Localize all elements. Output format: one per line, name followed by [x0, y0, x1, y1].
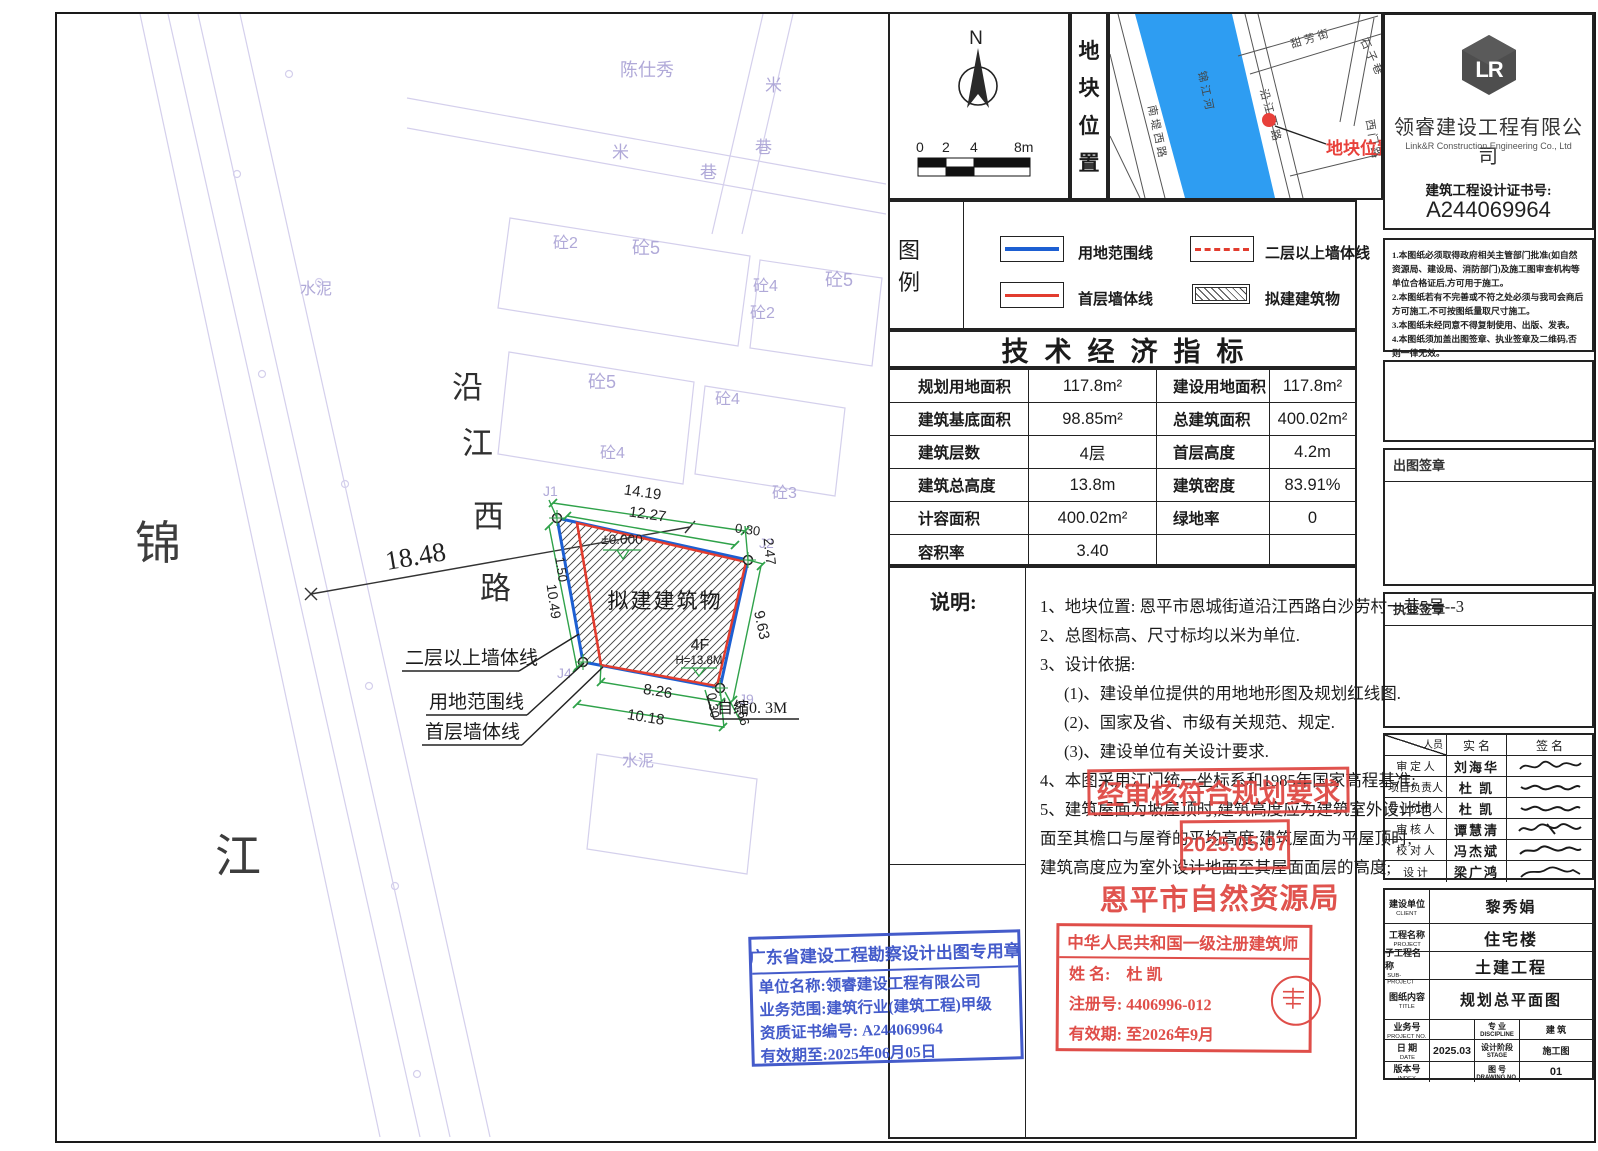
indicator-value: 117.8m²	[1029, 370, 1157, 403]
company-logo-icon: LR	[1457, 33, 1521, 97]
dim-top-outer: 14.19	[623, 482, 663, 504]
client-value: 黎秀娟	[1430, 890, 1592, 923]
architect-stamp: 中华人民共和国一级注册建筑师 姓 名: 杜 凯 注册号: 4406996-012…	[1056, 923, 1313, 1053]
indicator-value: 83.91%	[1270, 469, 1355, 502]
client-label-en: CLIENT	[1397, 910, 1418, 916]
title-block-row-date: 日 期DATE 2025.03 设计阶段STAGE 施工图	[1385, 1040, 1592, 1062]
discipline-value: 建 筑	[1520, 1020, 1592, 1039]
discipline-label-en: DISCIPLINE	[1480, 1032, 1514, 1038]
architect-seal-icon	[1271, 976, 1321, 1026]
architect-stamp-valid: 有效期: 至2026年9月	[1069, 1020, 1309, 1052]
stage-label: 设计阶段	[1481, 1042, 1513, 1053]
bg-label: 水泥	[622, 752, 654, 770]
indicator-value: 117.8m²	[1270, 370, 1355, 403]
legend-swatch-proposed	[1192, 284, 1250, 304]
title-block: 建设单位CLIENT 黎秀娟 工程名称PROJECT 住宅楼 子工程名称SUB-…	[1383, 888, 1594, 1080]
subproject-label-en: SUB-PROJECT	[1387, 972, 1427, 985]
indicator-value: 0	[1270, 502, 1355, 535]
map-street-top-label: 甜芳街	[1289, 25, 1333, 51]
indicator-value: 400.02m²	[1029, 502, 1157, 535]
scale-tick: 2	[942, 139, 950, 155]
legend-swatch-first-wall	[1000, 282, 1064, 308]
road-name: 沿 江 西 路	[452, 370, 511, 606]
company-name: 领睿建设工程有限公司	[1385, 111, 1592, 169]
scale-tick: 0	[916, 139, 924, 155]
north-label: N	[969, 28, 983, 49]
bg-label: 巷	[700, 163, 717, 182]
approval-stamp-date: 2025.05.07	[1180, 819, 1291, 870]
indicators-table: 规划用地面积 117.8m² 建设用地面积 117.8m² 建筑基底面积 98.…	[888, 368, 1357, 566]
shrink-label: 自缩0. 3M	[717, 699, 787, 717]
callout-first-wall-label: 首层墙体线	[425, 721, 520, 743]
dwgno-label: 图 号	[1488, 1064, 1506, 1075]
title-block-row-projectno: 业务号PROJECT NO. 专 业DISCIPLINE 建 筑	[1385, 1020, 1592, 1040]
bg-label: 砼4	[715, 390, 740, 408]
strip-char: 地	[1079, 35, 1100, 65]
indicator-value	[1270, 535, 1355, 568]
architect-stamp-title: 中华人民共和国一级注册建筑师	[1059, 926, 1309, 960]
bg-label: 砼3	[772, 484, 797, 502]
title-block-row-index: 版本号INDEX 图 号DRAWING NO. 01	[1385, 1062, 1592, 1082]
corner-label-j1: J1	[543, 483, 558, 499]
dim-left-top: 1.50	[552, 556, 570, 583]
signature-scribble	[1507, 861, 1592, 882]
projno-label-en: PROJECT NO.	[1387, 1033, 1426, 1039]
bg-label: 砼2	[553, 234, 578, 252]
approval-stamp: 经审核符合规划要求 2025.05.07 恩平市自然资源局	[1087, 767, 1351, 920]
site-marker-dot	[1262, 113, 1276, 127]
indicator-value: 3.40	[1029, 535, 1157, 568]
river-name-char: 江	[215, 831, 261, 882]
title-block-row-client: 建设单位CLIENT 黎秀娟	[1385, 890, 1592, 924]
disclaimer-item: 3.本图纸未经同意不得复制使用、出版、发表。	[1392, 318, 1585, 332]
project-label: 工程名称	[1389, 928, 1425, 941]
stage-value: 施工图	[1520, 1040, 1592, 1061]
north-arrow-icon	[967, 48, 989, 108]
notes-divider	[1025, 568, 1026, 1137]
disclaimer-item: 1.本图纸必须取得政府相关主管部门批准(如自然资源局、建设局、消防部门)及施工图…	[1392, 248, 1585, 290]
road-char: 江	[462, 426, 493, 461]
indicator-value: 98.85m²	[1029, 403, 1157, 436]
company-name-en: Link&R Construction Engineering Co., Ltd	[1385, 141, 1592, 151]
disclaimer-item: 4.本图纸须加盖出图签章、执业签章及二维码,否则一律无效。	[1392, 332, 1585, 360]
index-label: 版本号	[1393, 1062, 1420, 1075]
bg-label: 砼4	[600, 444, 625, 462]
dim-top-right-offset: 0.30	[734, 520, 761, 538]
note-line: 2、总图标高、尺寸标均以米为单位.	[1040, 621, 1464, 650]
dwgno-label-en: DRAWING NO.	[1476, 1075, 1517, 1081]
proposed-building-label: 拟建建筑物	[608, 589, 723, 613]
bg-label: 米	[612, 143, 629, 162]
indicator-value: 4.2m	[1270, 436, 1355, 469]
signature-scribble	[1507, 840, 1592, 861]
indicator-label	[1157, 535, 1270, 568]
subproject-value: 土建工程	[1430, 952, 1592, 979]
note-line: (1)、建设单位提供的用地地形图及规划红线图.	[1040, 679, 1464, 708]
date-value: 2025.03	[1430, 1040, 1475, 1061]
strip-char: 块	[1079, 72, 1100, 102]
indicator-label: 绿地率	[1157, 502, 1270, 535]
legend-panel: 图 例 用地范围线 二层以上墙体线 首层墙体线 拟建建筑物	[888, 200, 1357, 330]
projno-value	[1430, 1020, 1475, 1039]
dim-right-top: 2.47	[761, 537, 780, 566]
indicator-label: 建筑密度	[1157, 469, 1270, 502]
note-line: (2)、国家及省、市级有关规范、规定.	[1040, 708, 1464, 737]
indicator-label: 建筑总高度	[890, 469, 1029, 502]
sheet-title-label: 图纸内容	[1389, 990, 1425, 1003]
site-marker-label: 地块位置	[1326, 138, 1381, 158]
indicator-label: 建设用地面积	[1157, 370, 1270, 403]
callout-boundary-label: 用地范围线	[429, 691, 524, 713]
signature-scribble	[1507, 798, 1592, 819]
indicator-value: 13.8m	[1029, 469, 1157, 502]
bg-label: 水泥	[300, 280, 332, 298]
elevation-label: ±0.000	[601, 532, 642, 547]
scale-bar-icon	[918, 158, 1030, 176]
signature-scribble	[1507, 819, 1592, 840]
indicator-value: 4层	[1029, 436, 1157, 469]
drawing-sheet: 陈仕秀 米 巷 米 巷 砼2 砼5 砼4 砼2 砼5 水泥 砼5 砼4 砼3 砼…	[0, 0, 1598, 1151]
dim-road-width: 18.48	[383, 536, 448, 576]
legend-label-first-wall: 首层墙体线	[1078, 288, 1153, 309]
indicator-label: 建筑基底面积	[890, 403, 1029, 436]
bg-label: 砼5	[632, 238, 660, 258]
project-label-en: PROJECT	[1393, 941, 1420, 947]
bg-label: 米	[765, 76, 782, 95]
strip-char: 位	[1079, 110, 1100, 140]
bg-label: 巷	[755, 138, 772, 157]
compass-panel: N 0 2 4 8m	[888, 12, 1070, 200]
dim-right-side: 9.63	[750, 609, 773, 641]
corner-label-j4: J4	[557, 665, 572, 681]
index-value	[1430, 1062, 1475, 1082]
date-label: 日 期	[1397, 1041, 1417, 1054]
client-label: 建设单位	[1389, 897, 1425, 910]
bg-label: 砼4	[753, 277, 778, 295]
cert-number: A244069964	[1385, 197, 1592, 223]
subproject-label: 子工程名称	[1385, 946, 1429, 972]
location-strip-title: 地 块 位 置	[1070, 12, 1108, 200]
map-street-top-right-label: 石子巷	[1357, 36, 1381, 80]
title-block-row-title: 图纸内容TITLE 规划总平面图	[1385, 980, 1592, 1020]
approval-stamp-text: 经审核符合规划要求	[1087, 767, 1349, 816]
bg-label: 砼5	[825, 270, 853, 290]
scale-tick: 4	[970, 139, 978, 155]
notes-label: 说明:	[930, 586, 977, 615]
indicator-label: 建筑层数	[890, 436, 1029, 469]
disclaimer-notes: 1.本图纸必须取得政府相关主管部门批准(如自然资源局、建设局、消防部门)及施工图…	[1383, 238, 1594, 352]
indicator-label: 计容面积	[890, 502, 1029, 535]
indicator-label: 总建筑面积	[1157, 403, 1270, 436]
approval-stamp-org: 恩平市自然资源局	[1088, 875, 1350, 920]
location-map: 锦江河 南堤西路 沿江西路 甜芳街 石子巷 西门路 地块位置	[1108, 12, 1383, 200]
scale-tick: 8m	[1014, 139, 1033, 155]
stage-label-en: STAGE	[1487, 1053, 1507, 1059]
height-label: H=13.8M	[676, 655, 723, 667]
company-block: LR 领睿建设工程有限公司 Link&R Construction Engine…	[1383, 13, 1594, 230]
notes-left-divider	[890, 864, 1025, 865]
dim-bottom-inner: 8.26	[642, 681, 674, 702]
legend-label-upper-wall: 二层以上墙体线	[1265, 242, 1370, 263]
location-map-graphic: 锦江河 南堤西路 沿江西路 甜芳街 石子巷 西门路 地块位置	[1110, 14, 1381, 198]
road-char: 沿	[452, 370, 483, 405]
indicators-title: 技术经济指标	[888, 330, 1357, 368]
legend-label-boundary: 用地范围线	[1078, 242, 1153, 263]
legend-swatch-boundary	[1000, 236, 1064, 262]
index-label-en: INDEX	[1398, 1075, 1416, 1081]
cert-label: 建筑工程设计证书号:	[1385, 179, 1592, 199]
date-label-en: DATE	[1399, 1054, 1414, 1060]
indicator-label: 首层高度	[1157, 436, 1270, 469]
sheet-title-value: 规划总平面图	[1430, 980, 1592, 1019]
plot-seal-label: 出图签章	[1385, 450, 1592, 482]
strip-char: 置	[1079, 147, 1100, 177]
legend-swatch-upper-wall	[1190, 236, 1254, 262]
title-block-row-subproject: 子工程名称SUB-PROJECT 土建工程	[1385, 952, 1592, 980]
scale-tick-labels: 0 2 4 8m	[916, 139, 1033, 155]
blue-design-stamp: 广东省建设工程勘察设计出图专用章 单位名称:领睿建设工程有限公司 业务范围:建筑…	[748, 929, 1024, 1067]
dim-top-inner: 12.27	[628, 504, 668, 526]
compass-graphic: N 0 2 4 8m	[890, 14, 1068, 198]
legend-label-proposed: 拟建建筑物	[1265, 288, 1340, 309]
signature-scribble	[1507, 777, 1592, 798]
disclaimer-item: 2.本图纸若有不完善或不符之处必须与我司会商后方可施工,不可按图纸量取尺寸施工。	[1392, 290, 1585, 318]
road-char: 路	[480, 571, 511, 606]
note-line: (3)、建设单位有关设计要求.	[1040, 737, 1464, 766]
bg-label: 砼2	[750, 304, 775, 322]
indicator-label: 规划用地面积	[890, 370, 1029, 403]
callout-upper-wall-label: 二层以上墙体线	[405, 647, 538, 669]
indicator-value: 400.02m²	[1270, 403, 1355, 436]
dim-bottom-outer: 10.18	[626, 706, 666, 729]
indicator-label: 容积率	[890, 535, 1029, 568]
projno-label: 业务号	[1393, 1020, 1420, 1033]
bg-label: 陈仕秀	[620, 60, 674, 80]
note-line: 3、设计依据:	[1040, 650, 1464, 679]
signature-scribble	[1507, 756, 1592, 777]
personnel-header-sign: 签 名	[1507, 735, 1592, 756]
dwgno-value: 01	[1520, 1062, 1592, 1082]
project-value: 住宅楼	[1430, 924, 1592, 951]
river-name-char: 锦	[135, 518, 181, 569]
spacer-box	[1383, 360, 1594, 442]
legend-title: 图 例	[890, 202, 964, 328]
sheet-title-label-en: TITLE	[1399, 1003, 1415, 1009]
road-char: 西	[473, 499, 504, 534]
plot-seal-section: 出图签章	[1383, 448, 1594, 586]
note-line: 1、地块位置: 恩平市恩城街道沿江西路白沙劳村一巷5号--3	[1040, 592, 1464, 621]
floors-label: 4F	[691, 637, 710, 654]
bg-label: 砼5	[588, 372, 616, 392]
discipline-label: 专 业	[1488, 1021, 1506, 1032]
logo-letters: LR	[1475, 57, 1503, 82]
